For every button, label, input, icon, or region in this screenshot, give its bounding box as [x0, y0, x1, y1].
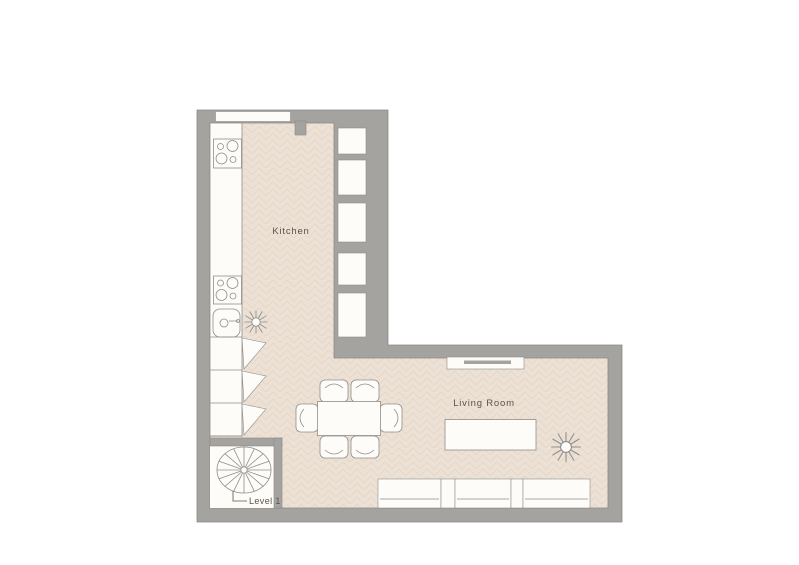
- sofa: [378, 479, 590, 508]
- niche: [338, 253, 366, 285]
- sofa-section: [378, 479, 441, 508]
- dining-chair: [320, 436, 348, 458]
- dining-chair: [296, 404, 318, 432]
- dining-chair: [351, 436, 379, 458]
- niche: [338, 160, 366, 195]
- kitchen-label: Kitchen: [272, 226, 309, 237]
- dining-chair: [320, 380, 348, 402]
- sofa-section: [455, 479, 511, 508]
- dining-table: [318, 402, 381, 436]
- living-room-label: Living Room: [453, 398, 515, 409]
- dining-chair: [380, 404, 402, 432]
- niche: [338, 293, 366, 337]
- tv-icon: [464, 361, 511, 365]
- niche: [338, 128, 366, 154]
- dining-chair: [351, 380, 379, 402]
- coffee-table: [445, 420, 536, 451]
- wall-stub: [295, 121, 306, 135]
- sofa-armrest: [511, 479, 523, 508]
- floor-plan-page: Kitchen Living Room Level 1: [0, 0, 799, 565]
- stair-wall-top: [210, 438, 282, 446]
- tv-console: [447, 357, 524, 369]
- window: [216, 112, 291, 122]
- sofa-armrest: [441, 479, 455, 508]
- floor-plan-canvas: Kitchen Living Room Level 1: [0, 0, 799, 565]
- stair-center-post: [241, 467, 247, 473]
- level-label: Level 1: [249, 496, 281, 506]
- sofa-section: [523, 479, 590, 508]
- niche: [338, 203, 366, 242]
